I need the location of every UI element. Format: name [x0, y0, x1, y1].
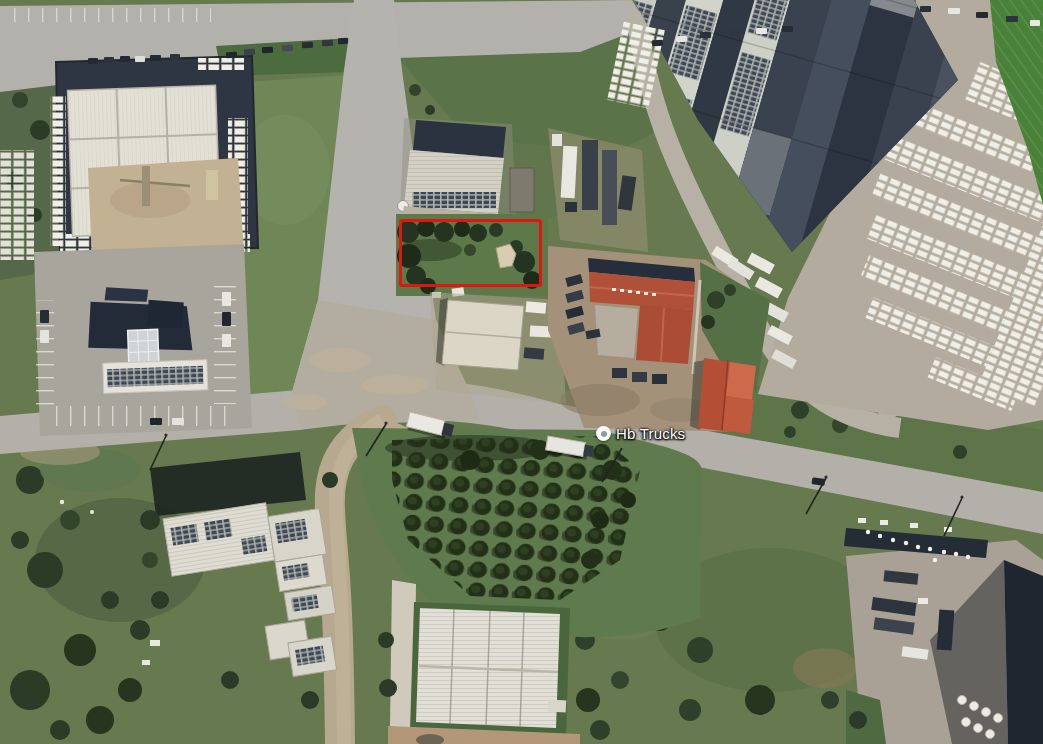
satellite-imagery: [0, 0, 1043, 744]
small-red-roof-building: [690, 358, 756, 434]
satellite-map-canvas[interactable]: Hb Trucks: [0, 0, 1043, 744]
tree-plot-parcel: [396, 214, 548, 298]
flat-roof-building: [430, 292, 566, 404]
poi-label: Hb Trucks: [616, 425, 685, 442]
poi-hb-trucks[interactable]: Hb Trucks: [596, 425, 685, 442]
place-marker-icon: [596, 426, 611, 441]
